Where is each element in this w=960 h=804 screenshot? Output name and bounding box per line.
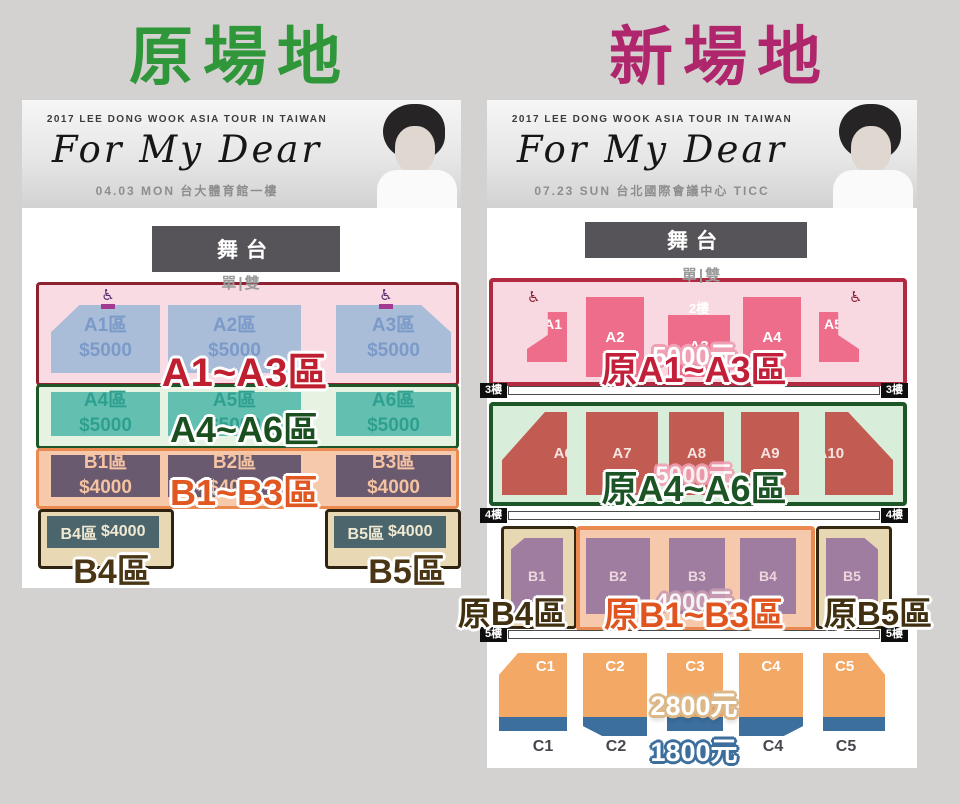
wheelchair-icon: ♿ — [849, 290, 862, 305]
section-name: C4 — [761, 658, 780, 675]
overlay-b1-b3: B1~B3區 — [36, 464, 453, 516]
original-venue-title: 原場地 — [0, 6, 480, 98]
stage-original: 舞台 — [152, 226, 340, 272]
section-name: C1 — [536, 658, 555, 675]
stage-label: 舞台 — [667, 225, 725, 255]
wheelchair-mat — [379, 304, 393, 309]
overlay-b5: 原B5區 — [793, 587, 960, 635]
wheelchair-mat — [101, 304, 115, 309]
overlay-b5: B5區 — [317, 544, 497, 593]
new-venue-panel: 2017 LEE DONG WOOK ASIA TOUR IN TAIWAN F… — [487, 100, 917, 768]
wheelchair-glyph: ♿ — [849, 290, 862, 305]
tour-name: 2017 LEE DONG WOOK ASIA TOUR IN TAIWAN — [22, 114, 352, 125]
section-name: C3 — [685, 658, 704, 675]
overlay-a4-a6: A4~A6區 — [36, 401, 453, 453]
stage-new: 舞台 — [585, 222, 807, 258]
artist-photo — [361, 100, 461, 208]
price-2800: 2800元 — [489, 684, 899, 723]
section-name: B4區 — [61, 520, 97, 544]
overlay-2f: 原A1~A3區 — [489, 341, 899, 393]
section-name: A1 — [544, 316, 562, 332]
section-name: A1區 — [84, 314, 127, 339]
concert-title: For My Dear — [22, 128, 352, 171]
artist-shirt — [833, 170, 913, 208]
original-venue-panel: 2017 LEE DONG WOOK ASIA TOUR IN TAIWAN F… — [22, 100, 461, 588]
section-price: $4000 — [388, 523, 433, 541]
artist-face — [395, 126, 435, 172]
overlay-3f: 原A4~A6區 — [489, 460, 899, 512]
aisle-label: 單|雙 — [487, 264, 917, 285]
new-date-venue: 07.23 SUN 台北國際會議中心 TICC — [487, 182, 817, 199]
concert-title: For My Dear — [487, 128, 817, 171]
section-name: A5 — [824, 316, 842, 332]
price-1800: 1800元 — [489, 730, 899, 769]
tour-name: 2017 LEE DONG WOOK ASIA TOUR IN TAIWAN — [487, 114, 817, 125]
banner-original: 2017 LEE DONG WOOK ASIA TOUR IN TAIWAN F… — [22, 100, 461, 208]
new-venue-title: 新場地 — [480, 6, 960, 98]
original-date-venue: 04.03 MON 台大體育館一樓 — [22, 182, 352, 199]
overlay-b4: B4區 — [22, 544, 202, 593]
section-name: A2區 — [213, 314, 256, 339]
section-name: B5區 — [348, 520, 384, 544]
section-name: C2 — [605, 658, 624, 675]
stage-label: 舞台 — [217, 234, 275, 264]
overlay-a1-a3: A1~A3區 — [36, 340, 453, 398]
artist-face — [851, 126, 891, 172]
artist-shirt — [377, 170, 457, 208]
floor-divider-bar — [508, 511, 880, 520]
section-name: C5 — [835, 658, 854, 675]
wheelchair-icon: ♿ — [527, 290, 540, 305]
aisle-label: 單|雙 — [22, 272, 461, 293]
poster: 原場地 新場地 2017 LEE DONG WOOK ASIA TOUR IN … — [0, 0, 960, 804]
section-name: A3區 — [372, 314, 415, 339]
wheelchair-glyph: ♿ — [527, 290, 540, 305]
section-price: $4000 — [101, 523, 146, 541]
banner-new: 2017 LEE DONG WOOK ASIA TOUR IN TAIWAN F… — [487, 100, 917, 208]
artist-photo — [817, 100, 917, 208]
